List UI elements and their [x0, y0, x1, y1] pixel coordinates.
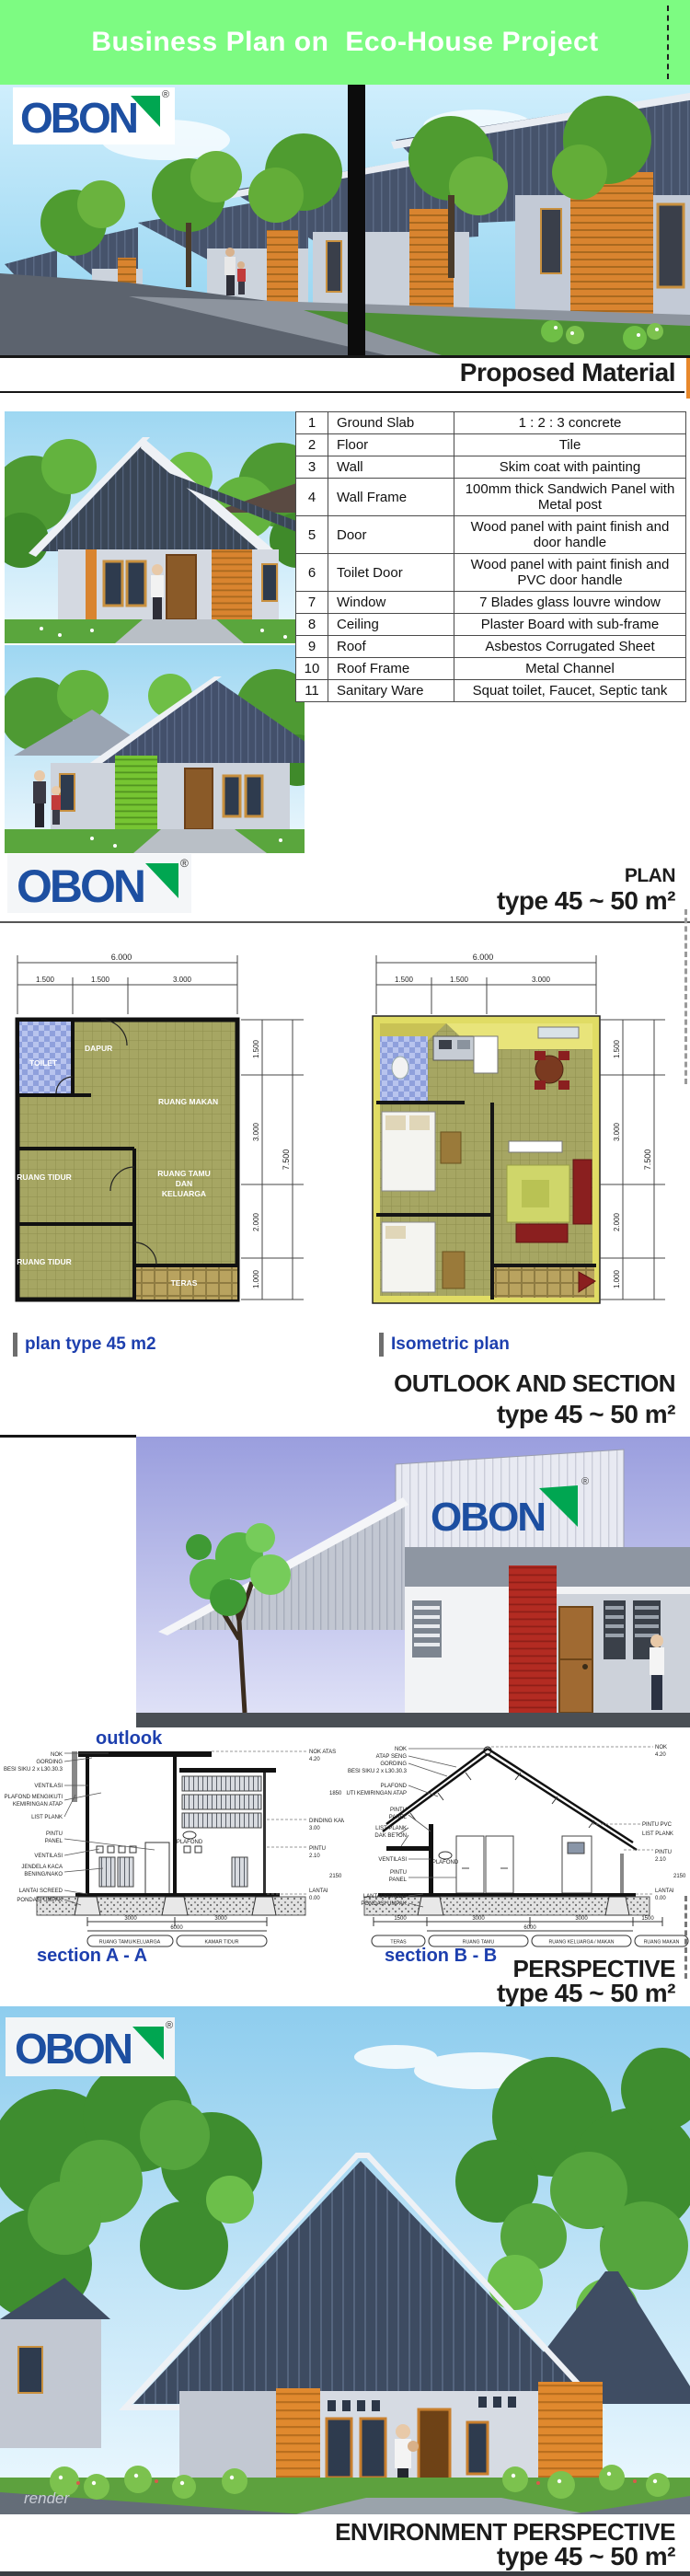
section-label: BESI SIKU 2 x L30.30.3 — [4, 1767, 63, 1773]
row-no: 3 — [296, 456, 328, 479]
caption-bar — [379, 1333, 384, 1357]
row-desc: Metal Channel — [454, 658, 686, 680]
orange-edge-tab — [686, 358, 690, 399]
table-row: 4Wall Frame100mm thick Sandwich Panel wi… — [296, 479, 686, 516]
section-label: VENTILASI — [34, 1854, 63, 1859]
dim-label: 1.500 — [252, 1039, 260, 1058]
dim-label: 7.500 — [643, 1149, 652, 1171]
obon-logo: OBON ® — [6, 2017, 175, 2076]
row-desc: Asbestos Corrugated Sheet — [454, 636, 686, 658]
table-row: 1Ground Slab1 : 2 : 3 concrete — [296, 412, 686, 434]
dim-label: 1.500 — [613, 1039, 621, 1058]
row-item: Wall Frame — [328, 479, 454, 516]
section-label: 2.10 — [655, 1857, 666, 1863]
render-watermark: render — [24, 2489, 70, 2507]
room-label-ruang-tidur: RUANG TIDUR — [17, 1172, 72, 1182]
plan-caption-text: plan type 45 m2 — [25, 1334, 156, 1355]
row-no: 6 — [296, 554, 328, 592]
bottom-strip — [0, 2571, 690, 2576]
section-label: PLAFOND MENGIKUTI — [5, 1795, 63, 1800]
row-item: Ground Slab — [328, 412, 454, 434]
room-tag: RUANG KELUARGA / MAKAN — [549, 1940, 615, 1946]
plan-caption: plan type 45 m2 — [13, 1333, 156, 1357]
section-label: LIST PLANK — [31, 1815, 63, 1820]
room-tag: RUANG TAMU — [463, 1940, 495, 1946]
row-desc: Wood panel with paint finish and PVC doo… — [454, 554, 686, 592]
obon-logo-text: OBON — [17, 861, 144, 912]
section-label: LANTAI — [655, 1889, 674, 1894]
page-title-right: Eco-House Project — [345, 27, 598, 57]
section-label: NOK — [655, 1745, 667, 1750]
row-desc: Tile — [454, 434, 686, 456]
obon-logo: OBON ® — [13, 87, 175, 144]
room-tag: RUANG TAMU/KELUARGA — [99, 1940, 161, 1946]
dim-label: 1.000 — [252, 1269, 260, 1288]
row-item: Roof Frame — [328, 658, 454, 680]
dim-label: 3000 — [575, 1916, 588, 1922]
section-label: PINTU PVC — [642, 1822, 673, 1828]
row-item: Roof — [328, 636, 454, 658]
house-render-green — [5, 645, 305, 853]
row-no: 4 — [296, 479, 328, 516]
room-label-ruang-tamu: KELUARGA — [162, 1189, 206, 1198]
section-label: JENDELA KACA — [21, 1865, 63, 1870]
page-title-left: Business Plan on — [91, 27, 328, 57]
obon-logo: OBON ® — [7, 854, 191, 913]
dim-label: 6000 — [170, 1925, 183, 1931]
room-tag: RUANG MAKAN — [644, 1940, 680, 1946]
section-label: PANEL — [45, 1839, 63, 1844]
plan-type-heading: type 45 ~ 50 m² — [276, 886, 684, 916]
slide-page: Business Plan onEco-House Project — [0, 0, 690, 2576]
row-desc: 7 Blades glass louvre window — [454, 592, 686, 614]
dim-label: 3000 — [124, 1916, 137, 1922]
row-no: 5 — [296, 516, 328, 554]
row-item: Floor — [328, 434, 454, 456]
section-label: PONDASI UMPAK — [361, 1901, 407, 1907]
registered-mark: ® — [162, 89, 169, 100]
section-label: BENING/NAKO — [24, 1872, 63, 1877]
row-no: 11 — [296, 680, 328, 702]
table-row: 5DoorWood panel with paint finish and do… — [296, 516, 686, 554]
section-label: LIST PLANK — [642, 1831, 673, 1837]
table-row: 2FloorTile — [296, 434, 686, 456]
border-dash-decoration — [667, 6, 669, 79]
environment-type-heading: type 45 ~ 50 m² — [230, 2542, 684, 2571]
room-label-ruang-makan: RUANG MAKAN — [158, 1097, 218, 1106]
isometric-caption: Isometric plan — [379, 1333, 510, 1357]
row-item: Door — [328, 516, 454, 554]
section-label: PANEL — [389, 1877, 408, 1883]
section-label: NOK ATAS — [309, 1750, 336, 1755]
row-no: 1 — [296, 412, 328, 434]
table-row: 8CeilingPlaster Board with sub-frame — [296, 614, 686, 636]
row-houses-photo: OBON ® — [0, 85, 690, 355]
house-render-orange — [5, 411, 305, 643]
dim-label: 1.500 — [36, 976, 55, 984]
louvre-bands — [182, 1776, 261, 1828]
row-item: Sanitary Ware — [328, 680, 454, 702]
section-label: PINTU — [655, 1850, 672, 1855]
plan-heading: PLAN — [276, 865, 684, 887]
row-no: 9 — [296, 636, 328, 658]
table-row: 10Roof FrameMetal Channel — [296, 658, 686, 680]
obon-logo-text: OBON — [20, 94, 137, 142]
section-label: KEMIRINGAN ATAP — [13, 1802, 63, 1808]
section-label: LIST PLANK — [375, 1826, 407, 1831]
dim-label: 3.000 — [532, 976, 551, 984]
dim-label: 3000 — [214, 1916, 227, 1922]
section-label: 2150 — [673, 1874, 686, 1879]
dim-label: 3.000 — [613, 1122, 621, 1141]
material-table: 1Ground Slab1 : 2 : 3 concrete 2FloorTil… — [295, 411, 686, 702]
section-label: PINTU — [46, 1831, 63, 1837]
section-label: GORDING — [380, 1762, 407, 1767]
room-label-ruang-tidur: RUANG TIDUR — [17, 1257, 72, 1266]
obon-billboard-text: OBON — [431, 1495, 545, 1540]
section-label: PINTU — [390, 1808, 407, 1813]
room-label-toilet: TOILET — [29, 1058, 58, 1068]
isometric-caption-text: Isometric plan — [391, 1334, 510, 1355]
plafond-label: PLAFOND — [177, 1840, 203, 1845]
dim-label: 1.500 — [91, 976, 110, 984]
section-label: NOK — [395, 1747, 407, 1752]
room-label-dapur: DAPUR — [85, 1044, 112, 1053]
caption-bar — [13, 1333, 17, 1357]
table-row: 11Sanitary WareSquat toilet, Faucet, Sep… — [296, 680, 686, 702]
divider — [0, 1435, 136, 1438]
section-label: DAK BETON — [374, 1833, 407, 1839]
ground-strip — [136, 1713, 690, 1727]
dim-label: 2.000 — [613, 1212, 621, 1231]
material-heading: Proposed Material — [0, 358, 684, 387]
section-a-caption: section A - A — [37, 1946, 147, 1967]
dim-label: 1.500 — [395, 976, 414, 984]
registered-mark: ® — [180, 857, 189, 870]
section-label: LANTAI SCREED — [19, 1889, 63, 1894]
row-no: 2 — [296, 434, 328, 456]
divider — [0, 921, 690, 923]
outlook-heading: OUTLOOK AND SECTION — [276, 1369, 684, 1398]
room-tag: TERAS — [390, 1940, 407, 1946]
dim-label: 1500 — [394, 1916, 407, 1922]
dim-label: 1500 — [641, 1916, 654, 1922]
registered-mark: ® — [166, 2020, 173, 2031]
section-label: BESI SIKU 2 x L30.30.3 — [348, 1769, 408, 1774]
dim-label: 6.000 — [111, 953, 132, 962]
section-label: PLAFOND — [381, 1784, 408, 1789]
dim-label: 3.000 — [252, 1122, 260, 1141]
perspective-type-heading: type 45 ~ 50 m² — [276, 1979, 684, 2008]
section-label: 0.00 — [655, 1896, 666, 1901]
section-label: PINTU — [390, 1870, 407, 1876]
dim-label: 3000 — [472, 1916, 485, 1922]
floor-plan-isometric: 6.000 1.500 1.500 3.000 — [354, 948, 690, 1316]
section-label: PINTU — [309, 1846, 326, 1852]
louvre-window — [412, 1600, 442, 1658]
dim-label: 2.000 — [252, 1212, 260, 1231]
dim-label: 3.000 — [173, 976, 192, 984]
section-label: PANEL — [389, 1815, 408, 1820]
row-desc: 1 : 2 : 3 concrete — [454, 412, 686, 434]
obon-logo-text: OBON — [15, 2025, 132, 2073]
section-label: 2.10 — [309, 1854, 320, 1859]
section-label: MENGIKUTI KEMIRINGAN ATAP — [346, 1791, 407, 1796]
section-label: 0.00 — [309, 1896, 320, 1901]
row-no: 8 — [296, 614, 328, 636]
section-label: 1850 — [329, 1791, 342, 1796]
room-label-teras: TERAS — [171, 1278, 198, 1288]
lamp-pole — [348, 85, 365, 355]
row-item: Ceiling — [328, 614, 454, 636]
room-tag: KAMAR TIDUR — [204, 1940, 238, 1946]
section-label: LANTAI SCREED — [363, 1894, 408, 1900]
room-label-ruang-tamu: DAN — [176, 1179, 192, 1188]
table-row: 9RoofAsbestos Corrugated Sheet — [296, 636, 686, 658]
section-label: LANTAI — [309, 1889, 328, 1894]
section-label: DINDING KAMAR — [309, 1819, 344, 1824]
pvc-door-window — [568, 1842, 584, 1854]
room-label-ruang-tamu: RUANG TAMU — [157, 1169, 210, 1178]
dim-label: 1.000 — [613, 1269, 621, 1288]
plafond-label: PLAFOND — [432, 1860, 459, 1866]
section-label: VENTILASI — [378, 1857, 407, 1863]
outlook-elevation: OBON ® — [136, 1437, 690, 1727]
registered-mark: ® — [581, 1476, 589, 1487]
row-no: 7 — [296, 592, 328, 614]
row-desc: Skim coat with painting — [454, 456, 686, 479]
section-label: GORDING — [36, 1760, 63, 1765]
row-desc: Wood panel with paint finish and door ha… — [454, 516, 686, 554]
dim-label: 6000 — [523, 1925, 536, 1931]
row-item: Wall — [328, 456, 454, 479]
table-row: 6Toilet DoorWood panel with paint finish… — [296, 554, 686, 592]
row-desc: Squat toilet, Faucet, Septic tank — [454, 680, 686, 702]
row-desc: 100mm thick Sandwich Panel with Metal po… — [454, 479, 686, 516]
dim-label: 7.500 — [282, 1149, 291, 1171]
page-title: Business Plan onEco-House Project — [0, 0, 690, 85]
section-label: ATAP SENG — [376, 1754, 408, 1760]
section-label: NOK — [51, 1752, 63, 1758]
section-a-drawing: PLAFOND NOK GORDING BESI SIKU 2 x L30.30… — [0, 1739, 344, 1947]
section-label: 4.20 — [309, 1757, 320, 1762]
row-no: 10 — [296, 658, 328, 680]
person — [151, 564, 164, 621]
section-label: PONDASI UMPAK — [17, 1898, 63, 1903]
title-banner: Business Plan onEco-House Project — [0, 0, 690, 85]
border-dash-decoration — [684, 1896, 687, 1979]
floor-plan-2d: 6.000 1.500 1.500 3.000 TOILET DAPUR RUA… — [0, 948, 331, 1316]
outlook-type-heading: type 45 ~ 50 m² — [276, 1400, 684, 1429]
table-row: 3WallSkim coat with painting — [296, 456, 686, 479]
perspective-render: render OBON ® — [0, 2006, 690, 2514]
dim-label: 1.500 — [450, 976, 469, 984]
section-label: 2150 — [329, 1874, 342, 1879]
row-item: Window — [328, 592, 454, 614]
dim-label: 6.000 — [473, 953, 494, 962]
section-b-drawing: PLAFOND NOK ATAP SENG GORDING BESI SIKU … — [346, 1739, 690, 1947]
section-label: VENTILASI — [34, 1784, 63, 1789]
row-desc: Plaster Board with sub-frame — [454, 614, 686, 636]
table-row: 7Window7 Blades glass louvre window — [296, 592, 686, 614]
section-label: 3.00 — [309, 1826, 320, 1831]
divider — [0, 391, 684, 393]
section-label: 4.20 — [655, 1752, 666, 1758]
row-item: Toilet Door — [328, 554, 454, 592]
